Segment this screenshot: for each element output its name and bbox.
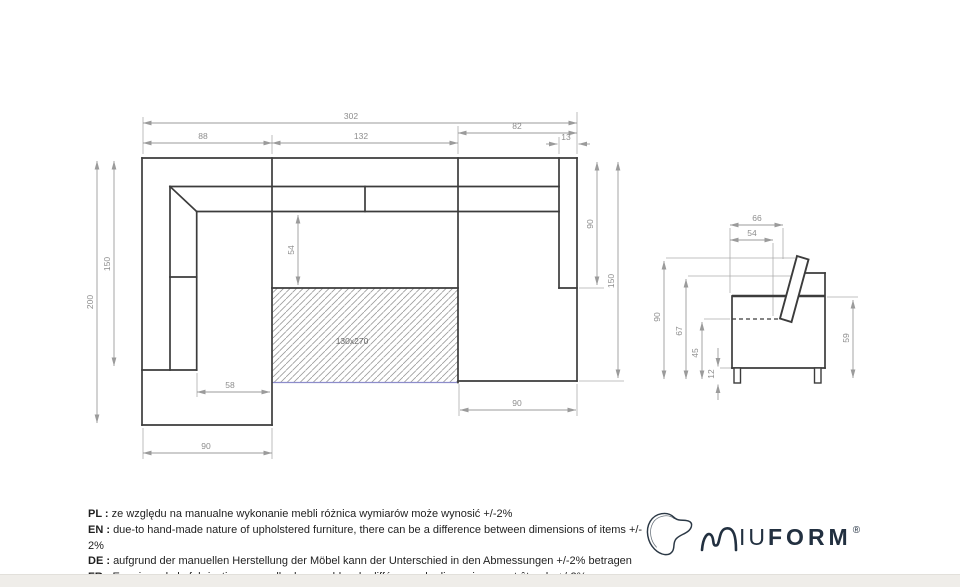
disclaimer-line-en: EN : due-to hand-made nature of upholste… [88,523,648,555]
disclaimer-text-pl: ze względu na manualne wykonanie mebli r… [112,508,513,520]
sleeping-area-label: 130x270 [336,336,369,346]
bean-logo-icon [645,510,697,564]
dim-right-depth-total: 150 [606,274,616,288]
disclaimer-text-en: due-to hand-made nature of upholstered f… [88,524,642,552]
technical-drawing: 302 88 132 82 13 200 150 54 90 150 58 90… [0,0,960,587]
dim-seat-depth: 54 [286,245,296,255]
dim-right-chaise-length: 90 [585,219,595,229]
disclaimer-text-de: aufgrund der manuellen Herstellung der M… [113,555,632,567]
dim-middle-section-width: 132 [354,131,368,141]
dim-side-leg-height: 12 [706,369,716,379]
dim-right-armrest-width: 13 [561,132,571,142]
brand-light-text: IU [739,524,768,551]
dim-side-seat-depth: 54 [747,228,757,238]
brand-wordmark: IUFORM® [739,524,862,551]
disclaimer-line-pl: PL : ze względu na manualne wykonanie me… [88,507,648,523]
miuform-logo: IUFORM® [645,506,880,568]
registered-mark: ® [853,525,863,536]
dim-right-chaise-width: 90 [512,398,522,408]
tilted-backrest-cushion [780,256,809,322]
dim-side-height-total: 90 [652,312,662,322]
page-bottom-edge [0,574,960,587]
dim-side-seat-height: 45 [690,348,700,358]
lang-label-en: EN : [88,524,110,536]
furniture-dimension-sheet: 302 88 132 82 13 200 150 54 90 150 58 90… [0,0,960,587]
dim-side-armrest-height: 59 [841,333,851,343]
plan-view: 302 88 132 82 13 200 150 54 90 150 58 90… [85,111,624,459]
side-view: 66 54 90 67 45 12 59 [652,213,858,400]
dim-overall-width: 302 [344,111,358,121]
dim-left-chaise-width: 90 [201,441,211,451]
dim-side-depth-total: 66 [752,213,762,223]
dim-left-depth-total: 200 [85,295,95,309]
side-outline [732,256,825,383]
dim-left-section-width: 88 [198,131,208,141]
lang-label-pl: PL : [88,508,109,520]
lang-label-de: DE : [88,555,110,567]
wave-m-glyph [699,517,739,557]
side-extension-lines [666,228,858,368]
dim-left-depth-inner: 150 [102,257,112,271]
brand-bold-text: FORM [768,524,852,551]
disclaimer-line-de: DE : aufgrund der manuellen Herstellung … [88,554,648,570]
plan-extension-lines [143,112,624,459]
dim-left-seat-width: 58 [225,380,235,390]
dim-right-section-width: 82 [512,121,522,131]
dim-side-backrest-height: 67 [674,326,684,336]
